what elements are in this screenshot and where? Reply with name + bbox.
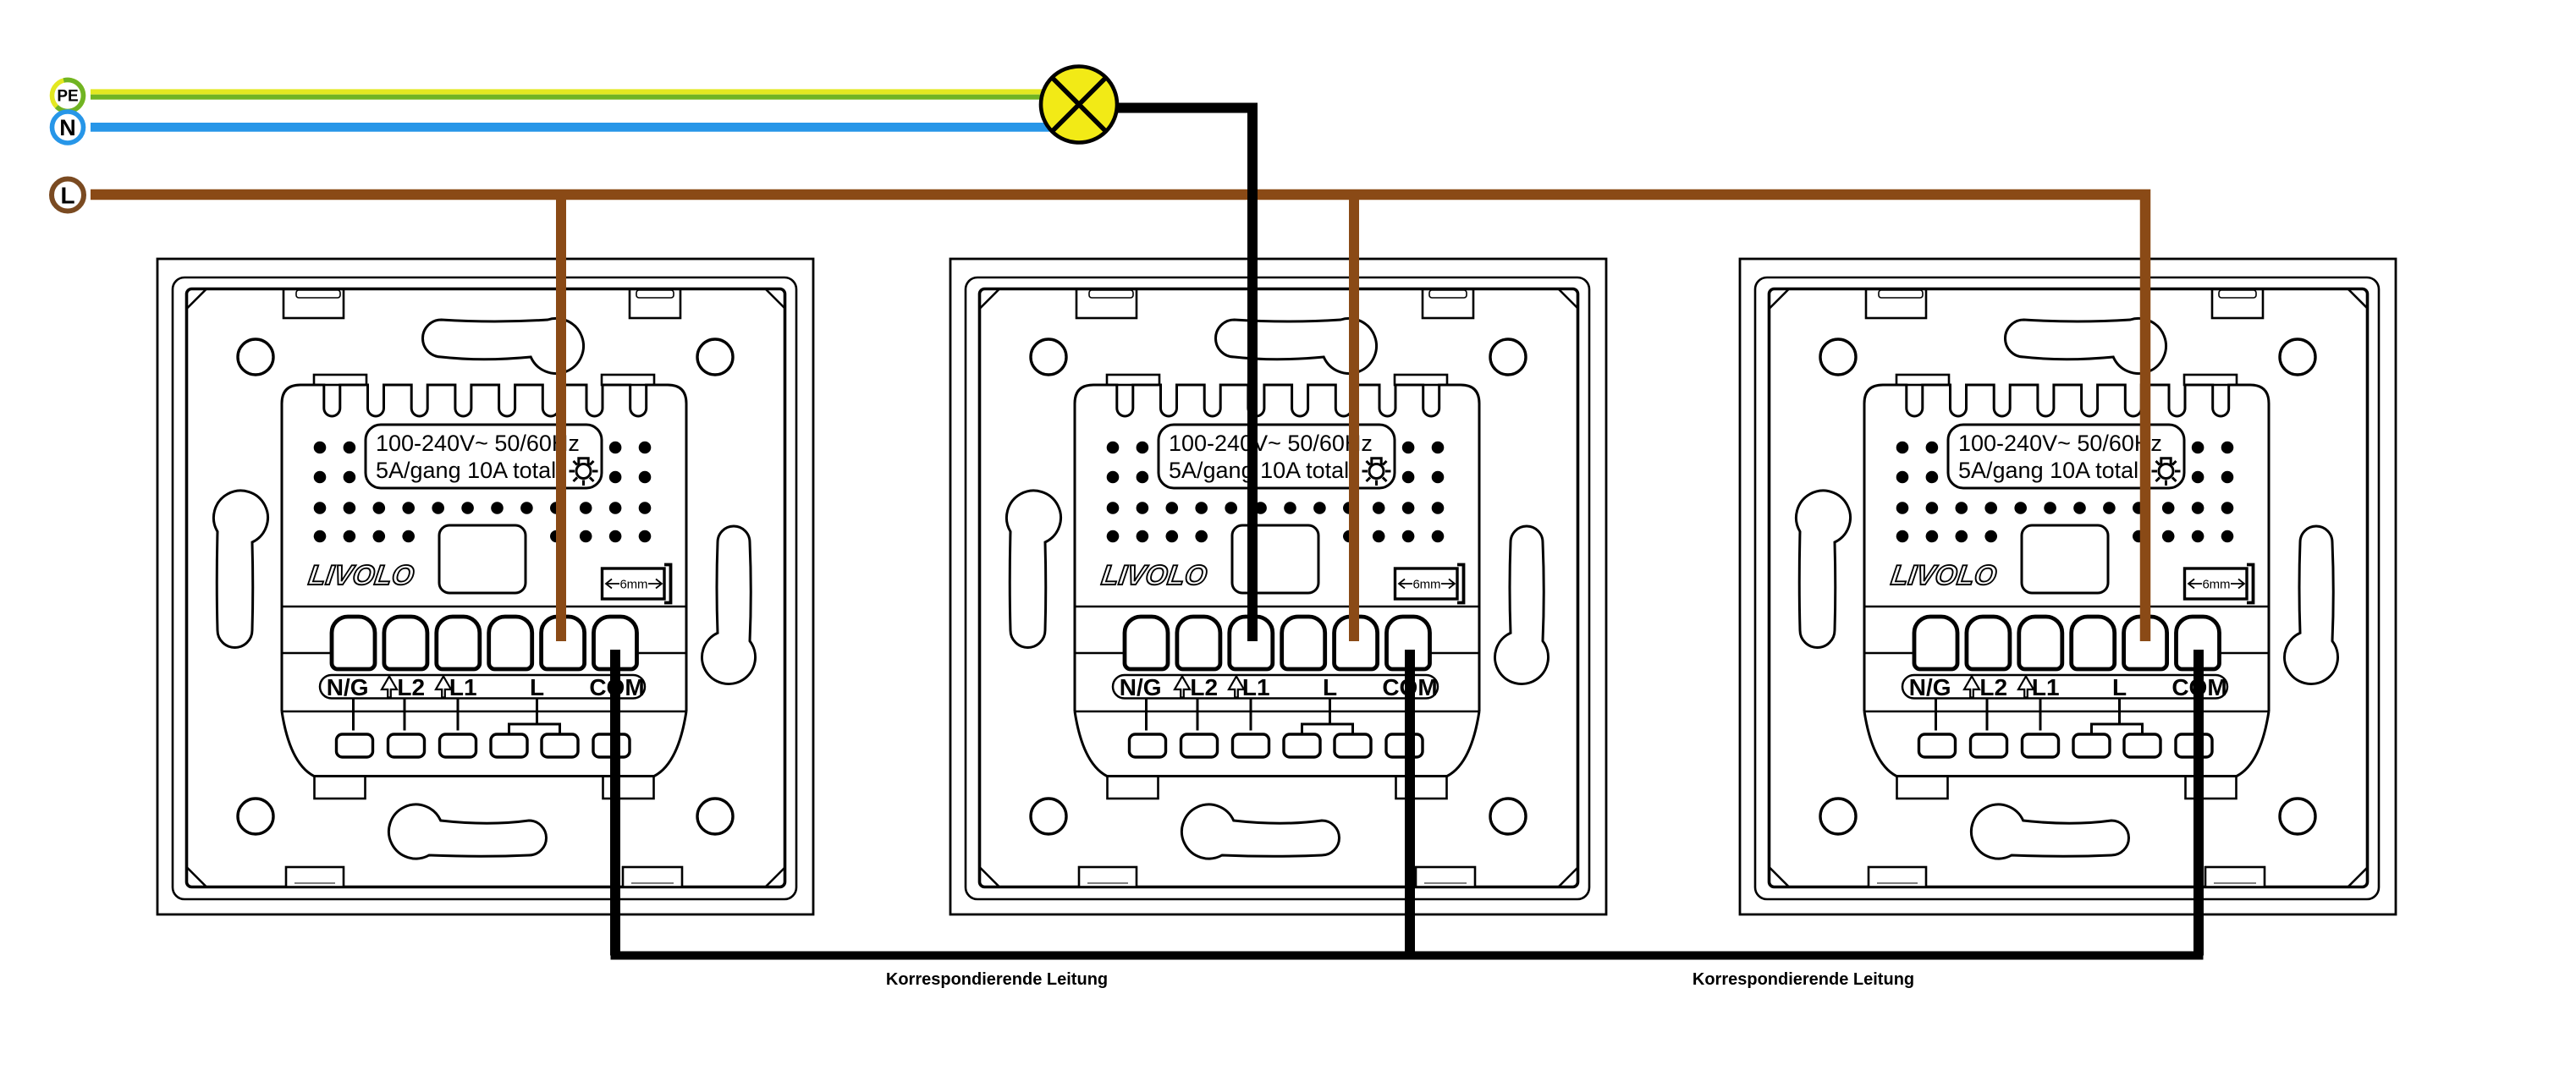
svg-text:PE: PE	[57, 88, 78, 106]
svg-text:N: N	[59, 115, 76, 140]
svg-text:Korrespondierende Leitung: Korrespondierende Leitung	[886, 970, 1108, 989]
svg-text:L: L	[60, 183, 74, 209]
svg-text:Korrespondierende Leitung: Korrespondierende Leitung	[1693, 970, 1914, 989]
